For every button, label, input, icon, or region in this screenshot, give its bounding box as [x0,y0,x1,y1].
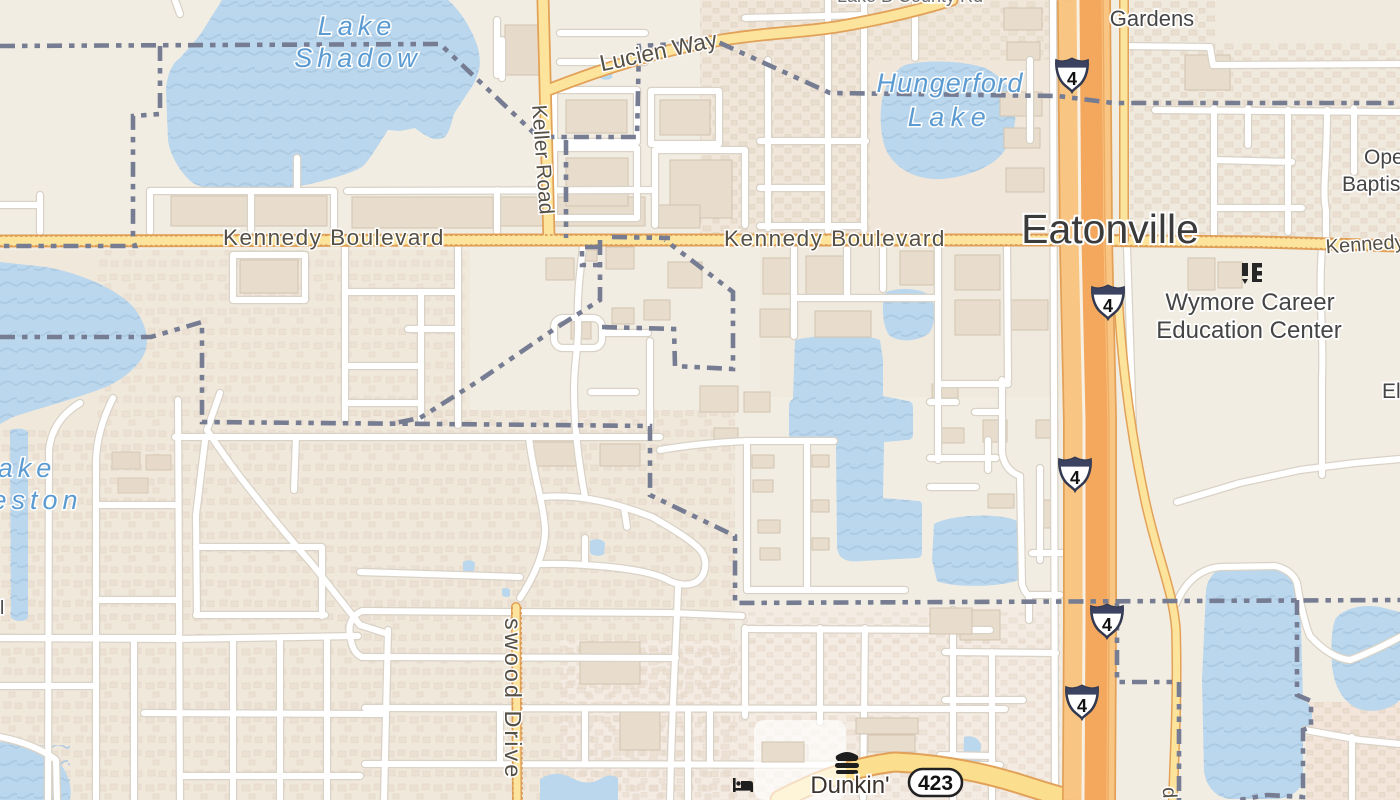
svg-text:Lake: Lake [318,11,397,41]
svg-text:Dunkin': Dunkin' [810,772,889,799]
svg-text:Kennedy Boulevard: Kennedy Boulevard [223,225,445,250]
svg-text:l: l [0,598,4,619]
svg-text:Open: Open [1364,146,1400,169]
svg-text:Wymore Career: Wymore Career [1165,289,1334,316]
svg-text:Education Center: Education Center [1156,317,1341,344]
svg-text:Gardens: Gardens [1110,6,1194,31]
svg-text:Hungerford: Hungerford [876,68,1023,98]
svg-text:ake: ake [0,453,56,483]
svg-text:Shadow: Shadow [294,43,422,73]
svg-text:Baptist: Baptist [1342,173,1400,196]
svg-text:Kennedy Boulevard: Kennedy Boulevard [724,226,946,251]
svg-text:El: El [1382,380,1400,403]
svg-text:eston: eston [0,485,83,515]
svg-text:423: 423 [918,772,953,795]
svg-text:d: d [1158,787,1181,799]
svg-text:swood Drive: swood Drive [500,618,526,780]
svg-text:Lake B County Rd: Lake B County Rd [837,0,983,6]
svg-text:Lake: Lake [908,102,993,132]
svg-text:Eatonville: Eatonville [1021,206,1199,252]
